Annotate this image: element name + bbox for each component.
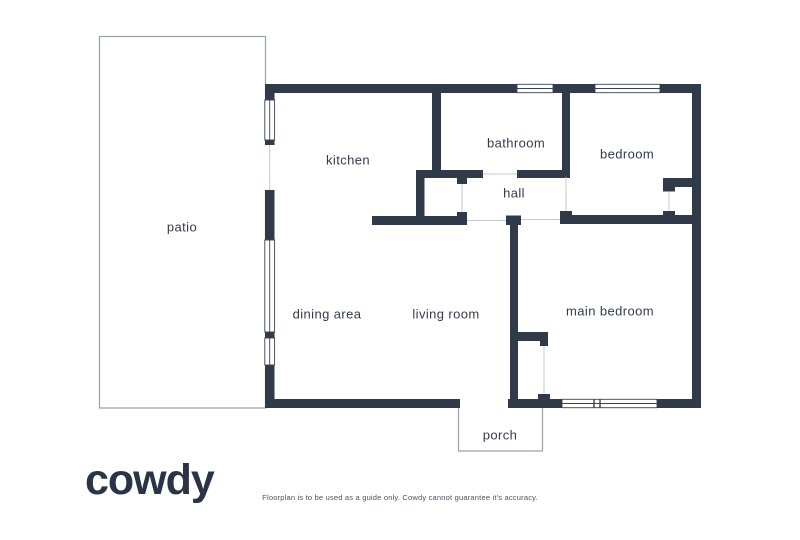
gap-porch-door [460, 398, 508, 409]
wall-hall-bottom [372, 216, 467, 225]
jamb-mainbedroom-right [663, 211, 675, 216]
wall-hall-top [416, 170, 483, 178]
room-label-dining-area: dining area [293, 307, 362, 322]
wall-mainbedroom-top [560, 215, 701, 224]
window-kitchen-left [265, 100, 275, 140]
room-label-living-room: living room [412, 307, 479, 322]
room-label-kitchen: kitchen [326, 153, 370, 168]
window-dining-left-lower [265, 338, 275, 365]
jamb-closet-bottom [538, 394, 550, 399]
room-label-main-bedroom: main bedroom [566, 304, 654, 319]
window-bedroom-top [595, 84, 660, 92]
wall-livingroom-mainbedroom [510, 216, 518, 403]
door-gaps [264, 145, 508, 409]
wall-bedroom-left [562, 93, 570, 177]
wall-closet-stub [518, 332, 548, 341]
jamb-closet-top [540, 341, 548, 346]
room-label-patio: patio [167, 220, 197, 235]
disclaimer-text: Floorplan is to be used as a guide only.… [262, 493, 538, 502]
wall-kitchen-right [432, 93, 441, 170]
room-label-porch: porch [483, 428, 518, 443]
window-bathroom-top [517, 84, 553, 92]
floorplan-canvas: patio kitchen bathroom bedroom hall dini… [0, 0, 800, 540]
wall-bedroom-bottom-stub [663, 178, 701, 187]
jamb-mainbedroom-left [560, 211, 572, 216]
walls [265, 84, 701, 408]
wall-right [692, 84, 701, 408]
opening-lines [270, 145, 669, 394]
room-label-bathroom: bathroom [487, 136, 545, 151]
jamb-cupboard-top [457, 178, 467, 184]
room-label-hall: hall [503, 186, 525, 201]
windows [265, 84, 660, 407]
room-label-bedroom: bedroom [600, 147, 654, 162]
window-mainbedroom-bottom [562, 399, 657, 407]
jamb-cupboard-bottom [457, 212, 467, 217]
cowdy-logo: cowdy [85, 459, 214, 502]
window-dining-left-upper [265, 240, 275, 332]
jamb-bedroom-stub [663, 187, 675, 192]
